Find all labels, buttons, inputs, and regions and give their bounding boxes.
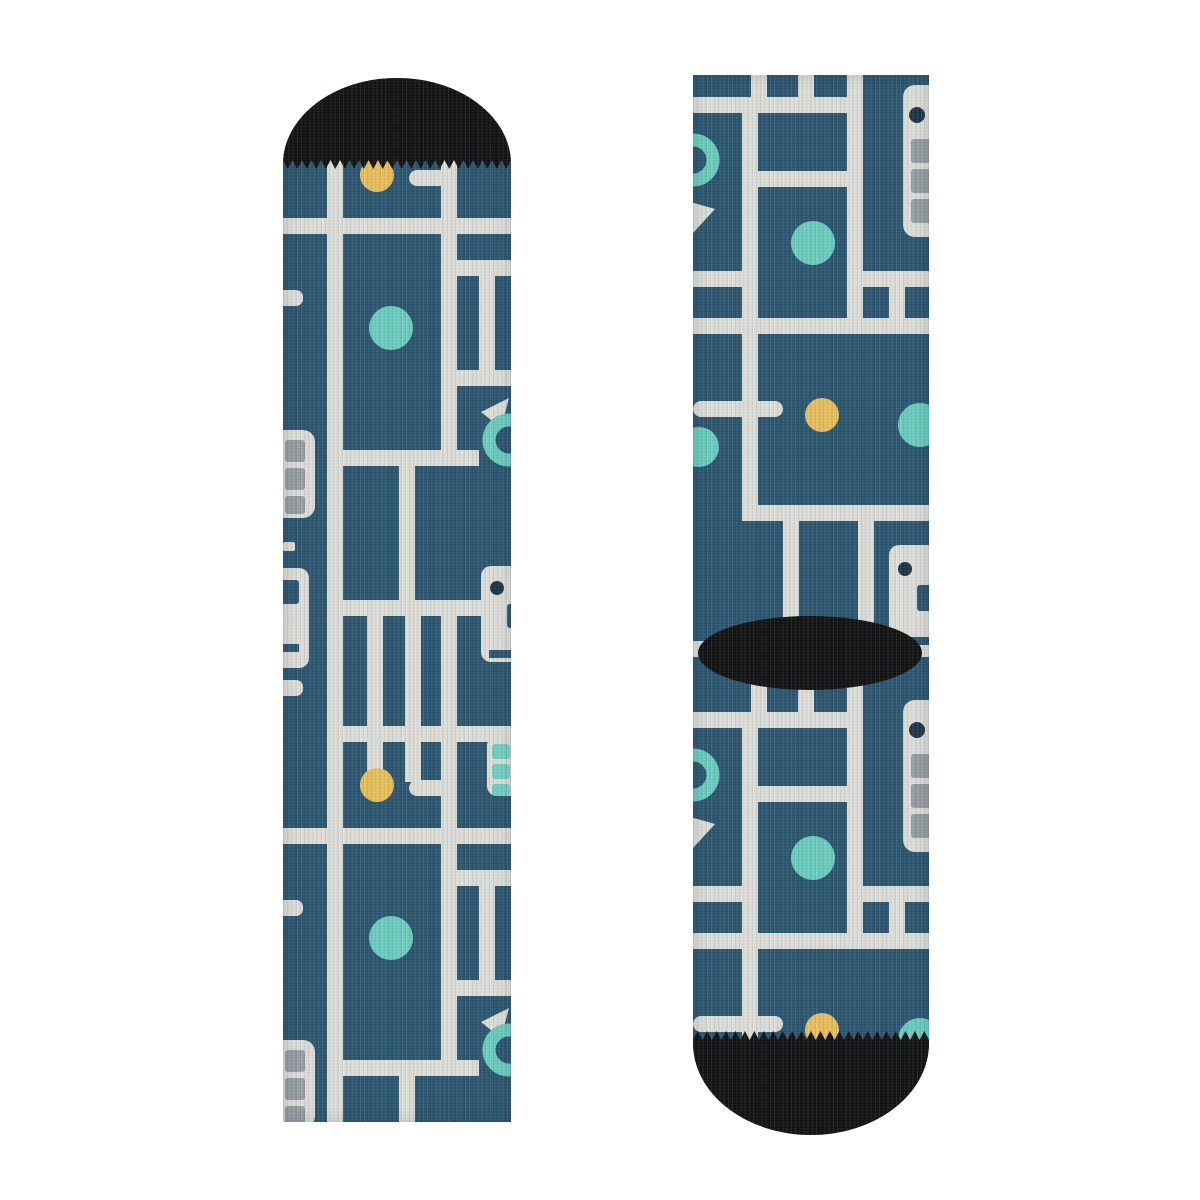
city-map-pattern-back: [693, 75, 929, 1135]
product-photo-canvas: [0, 0, 1200, 1200]
heel-patch: [698, 616, 922, 690]
pattern-tile: [283, 750, 511, 1122]
pattern-tile: [693, 75, 929, 657]
toe-cap: [283, 78, 511, 169]
toe-cap: [693, 1031, 929, 1135]
sock-back-view: [693, 75, 929, 1135]
sock-front-view: [283, 78, 511, 1122]
city-map-pattern-front: [283, 78, 511, 1122]
pattern-tile: [283, 140, 511, 796]
